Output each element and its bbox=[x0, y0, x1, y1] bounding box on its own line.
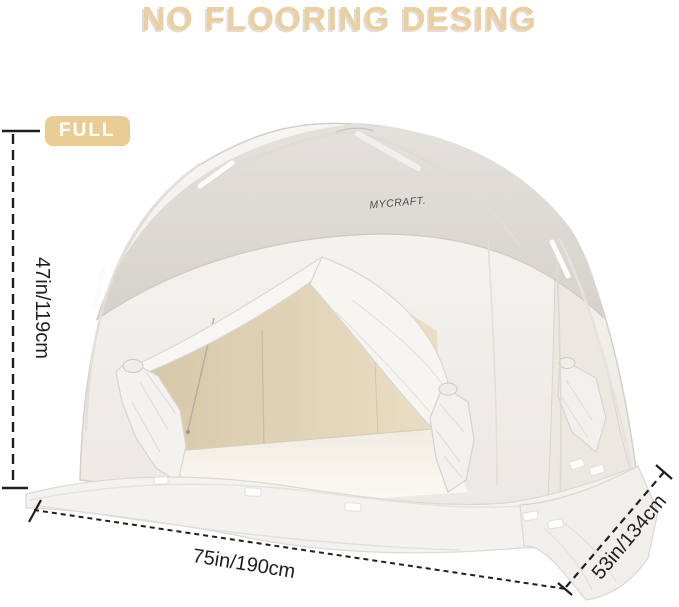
zipper-pull bbox=[186, 430, 190, 434]
tent-body: MYCRAFT. bbox=[80, 123, 640, 514]
curtain-knot-left bbox=[123, 360, 143, 373]
dimension-label-height: 47in/119cm bbox=[31, 257, 53, 359]
curtain-knot-right bbox=[439, 383, 457, 395]
curtain-knot-side bbox=[559, 358, 575, 369]
tent-illustration: MYCRAFT. bbox=[0, 0, 679, 607]
dimension-label-width: 75in/190cm bbox=[191, 545, 297, 583]
